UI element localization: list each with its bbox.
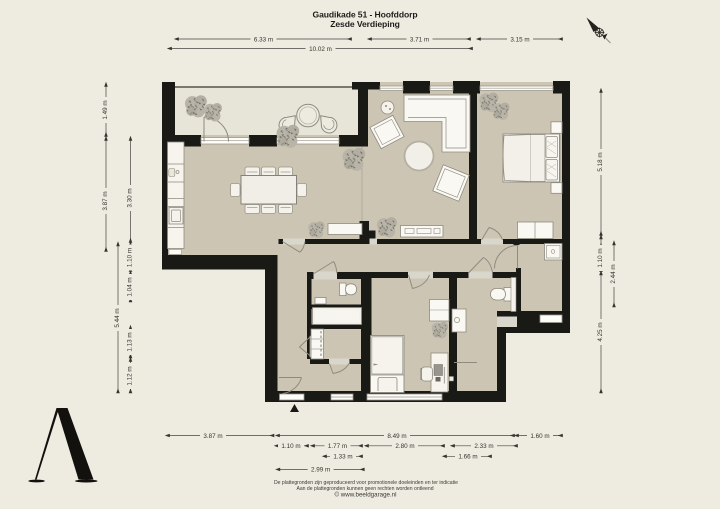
svg-text:3.87 m: 3.87 m xyxy=(203,433,222,440)
svg-text:1.66 m: 1.66 m xyxy=(458,454,477,461)
svg-text:10.02 m: 10.02 m xyxy=(309,46,332,53)
svg-text:2.33 m: 2.33 m xyxy=(474,443,493,450)
svg-text:Zesde Verdieping: Zesde Verdieping xyxy=(330,19,400,29)
svg-text:4.25 m: 4.25 m xyxy=(597,322,604,341)
svg-text:1.33 m: 1.33 m xyxy=(333,454,352,461)
svg-text:5.18 m: 5.18 m xyxy=(597,152,604,171)
svg-text:Gaudikade 51 - Hoofddorp: Gaudikade 51 - Hoofddorp xyxy=(312,9,417,19)
svg-text:1.49 m: 1.49 m xyxy=(102,100,109,119)
svg-text:1.10 m: 1.10 m xyxy=(597,248,604,267)
svg-text:2.99 m: 2.99 m xyxy=(311,467,330,474)
svg-text:6.33 m: 6.33 m xyxy=(254,36,273,43)
svg-text:1.13 m: 1.13 m xyxy=(126,332,133,351)
svg-text:1.04 m: 1.04 m xyxy=(126,277,133,296)
svg-text:3.30 m: 3.30 m xyxy=(126,188,133,207)
svg-text:3.87 m: 3.87 m xyxy=(102,191,109,210)
svg-text:1.10 m: 1.10 m xyxy=(281,443,300,450)
svg-text:5.44 m: 5.44 m xyxy=(114,308,121,327)
svg-text:2.44 m: 2.44 m xyxy=(610,264,617,283)
svg-text:1.10 m: 1.10 m xyxy=(126,248,133,267)
svg-text:1.60 m: 1.60 m xyxy=(530,433,549,440)
svg-text:2.80 m: 2.80 m xyxy=(395,443,414,450)
svg-text:1.77 m: 1.77 m xyxy=(328,443,347,450)
svg-text:8.49 m: 8.49 m xyxy=(387,433,406,440)
svg-text:3.15 m: 3.15 m xyxy=(510,36,529,43)
svg-text:3.71 m: 3.71 m xyxy=(410,36,429,43)
svg-text:© www.beeldgarage.nl: © www.beeldgarage.nl xyxy=(334,491,396,498)
svg-text:1.12 m: 1.12 m xyxy=(126,366,133,385)
